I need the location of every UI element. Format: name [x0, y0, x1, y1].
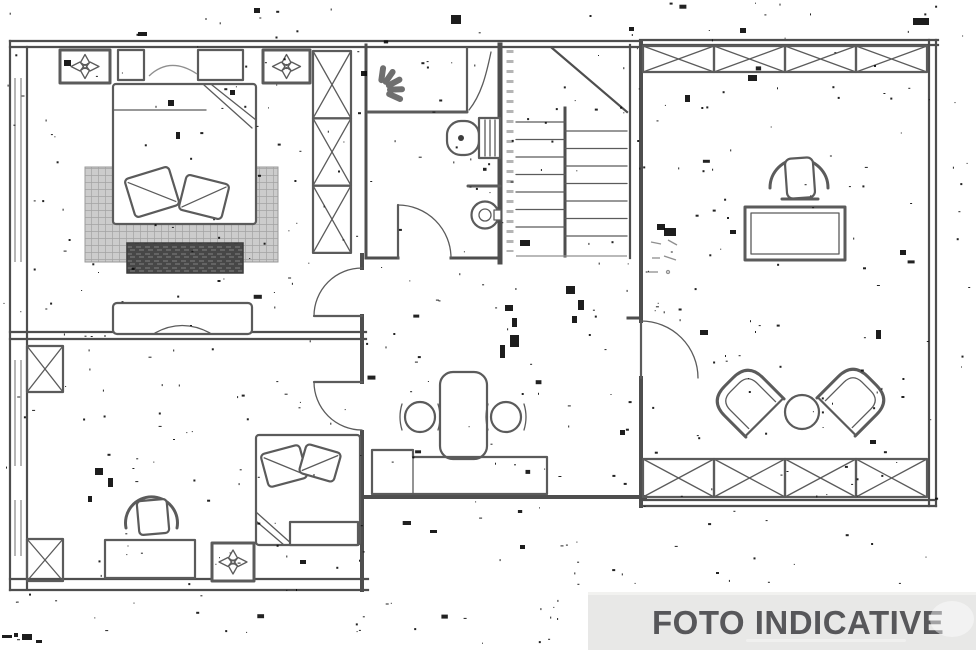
desk-chair — [770, 157, 828, 199]
bench — [127, 243, 243, 273]
ceiling-light-icon — [60, 50, 110, 83]
nightstand-right — [198, 50, 243, 80]
island-table — [440, 372, 487, 459]
bed-side-shelf — [290, 522, 358, 545]
bedroom1-door — [314, 268, 362, 316]
bedroom-upper-left — [60, 50, 310, 334]
toilet — [447, 118, 500, 158]
bathroom-door — [398, 205, 451, 258]
desk — [105, 540, 195, 578]
banner-streak — [746, 639, 906, 642]
chair — [126, 497, 178, 535]
headboard-drape — [149, 65, 197, 76]
kitchen-counter — [372, 450, 547, 494]
bedroom2-door — [314, 382, 362, 430]
ceiling-light-icon — [212, 543, 254, 581]
ceiling-light-icon — [263, 50, 310, 83]
dimension-annotation — [648, 240, 677, 274]
living-room-door — [641, 321, 698, 378]
window-glazing — [15, 78, 21, 556]
armchair — [710, 363, 784, 437]
shower-spray-icon — [378, 65, 405, 103]
floor-plan-image: FOTO INDICATIVE — [0, 0, 976, 650]
wall-x-boxes — [27, 346, 63, 581]
railing-bottom — [643, 459, 927, 497]
table — [745, 207, 845, 260]
wardrobe-x-column — [313, 51, 351, 253]
stool — [400, 402, 440, 432]
shower — [368, 48, 491, 112]
double-bed — [113, 84, 256, 224]
bathroom — [368, 48, 501, 229]
stool — [486, 402, 526, 432]
banner-label: FOTO INDICATIVE — [652, 604, 944, 642]
single-bed — [256, 435, 360, 545]
railing-top — [643, 46, 927, 72]
armchair — [817, 362, 891, 436]
washbasin — [468, 186, 501, 229]
staircase — [516, 122, 627, 236]
photo-indicative-banner: FOTO INDICATIVE — [588, 592, 976, 650]
hall-kitchen — [372, 372, 547, 494]
bedroom-lower-left — [105, 435, 360, 581]
sideboard — [113, 303, 252, 334]
living-terrace — [648, 157, 891, 437]
banner-watermark — [930, 601, 974, 637]
nightstand-left — [118, 50, 144, 80]
floor-plan-drawing — [0, 0, 976, 650]
